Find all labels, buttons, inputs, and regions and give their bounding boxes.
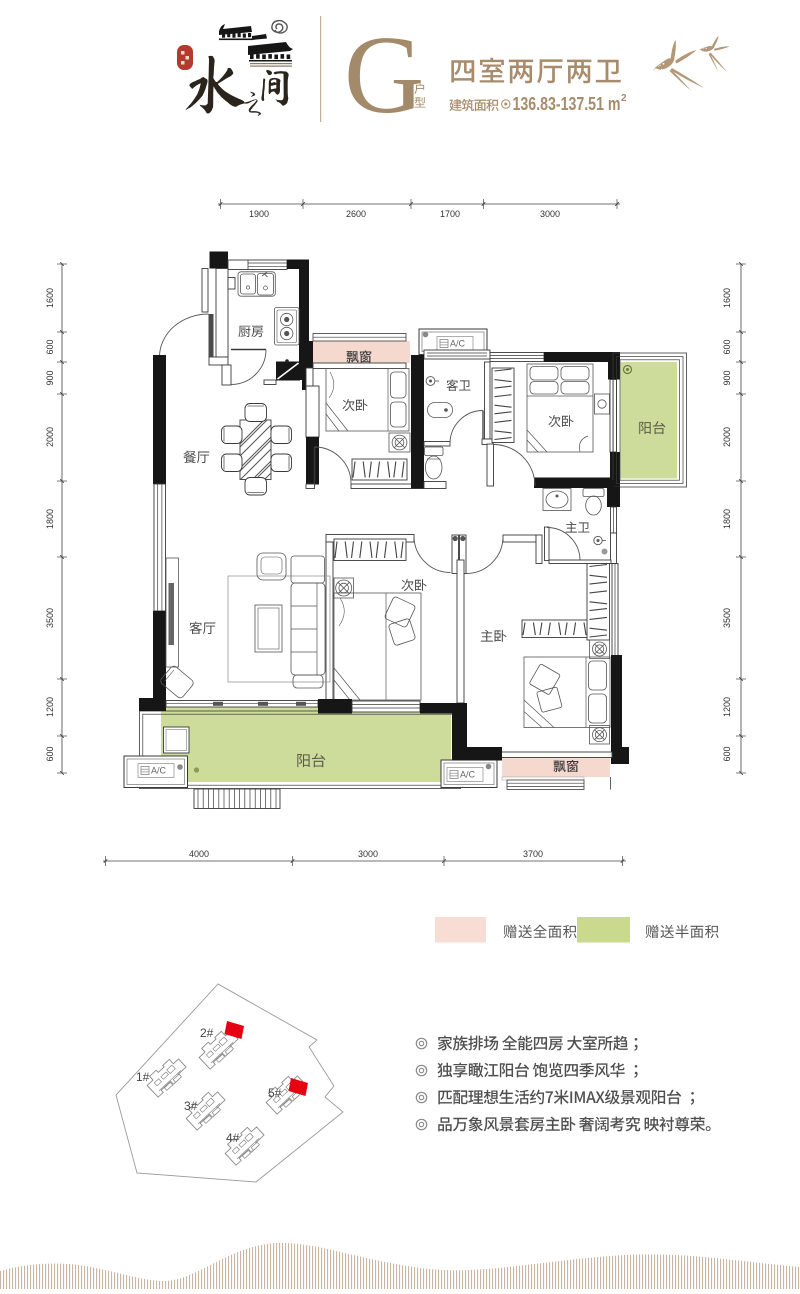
- svg-text:2000: 2000: [45, 427, 55, 447]
- svg-text:A/C: A/C: [460, 770, 476, 780]
- svg-text:3500: 3500: [722, 608, 732, 628]
- svg-text:1#: 1#: [136, 1070, 150, 1084]
- svg-text:4#: 4#: [226, 1131, 240, 1145]
- svg-text:1200: 1200: [45, 697, 55, 717]
- svg-text:3#: 3#: [184, 1099, 198, 1113]
- svg-text:1700: 1700: [440, 209, 460, 219]
- svg-text:600: 600: [45, 746, 55, 761]
- svg-text:600: 600: [722, 339, 732, 354]
- svg-text:5#: 5#: [268, 1086, 282, 1100]
- svg-text:600: 600: [45, 339, 55, 354]
- svg-text:4000: 4000: [189, 849, 209, 859]
- svg-text:1200: 1200: [722, 697, 732, 717]
- svg-text:3500: 3500: [45, 608, 55, 628]
- svg-text:900: 900: [45, 370, 55, 385]
- svg-text:2#: 2#: [200, 1026, 214, 1040]
- svg-text:1600: 1600: [45, 288, 55, 308]
- svg-text:900: 900: [722, 370, 732, 385]
- svg-text:2000: 2000: [722, 427, 732, 447]
- svg-text:A/C: A/C: [151, 766, 167, 776]
- svg-text:3000: 3000: [358, 849, 378, 859]
- svg-text:1600: 1600: [722, 288, 732, 308]
- svg-text:2600: 2600: [346, 209, 366, 219]
- svg-text:3700: 3700: [523, 849, 543, 859]
- svg-text:A/C: A/C: [450, 339, 466, 349]
- svg-text:1800: 1800: [45, 509, 55, 529]
- svg-text:1800: 1800: [722, 509, 732, 529]
- svg-text:3000: 3000: [540, 209, 560, 219]
- svg-text:2: 2: [621, 93, 627, 104]
- svg-text:1900: 1900: [249, 209, 269, 219]
- svg-text:136.83-137.51 m: 136.83-137.51 m: [513, 93, 621, 114]
- svg-text:600: 600: [722, 746, 732, 761]
- svg-text:G: G: [344, 14, 424, 137]
